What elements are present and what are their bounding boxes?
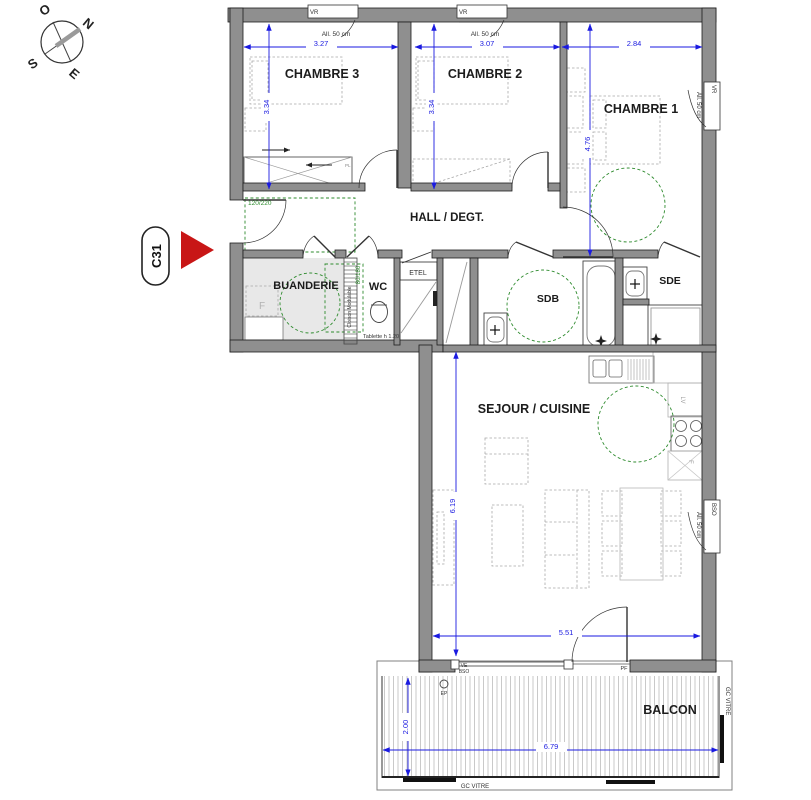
glass-railing-segment (720, 715, 724, 763)
sill-height-label: All. 50 cm (322, 31, 351, 38)
closet-label: PL (345, 163, 351, 168)
washer-label: F (259, 301, 265, 312)
french-door-label: PF (620, 666, 628, 672)
floor-plan-page: 3.27 3.07 2.84 3.34 3.34 4.76 6.19 5.51 … (0, 0, 811, 800)
railing-label: GC VITRE (461, 784, 489, 790)
shelf-label: Tablette h 1.20 (363, 334, 399, 340)
annotation-labels: VR VR All. 50 cm All. 50 cm VR All. 50 c… (248, 10, 730, 790)
window-type-label: VR (710, 85, 716, 94)
dining-chair (661, 491, 681, 516)
wall-sejour-bottom (419, 660, 455, 672)
window-type-label: BSO (710, 503, 716, 516)
room-label-buanderie: BUANDERIE (273, 280, 338, 292)
wardrobe (565, 96, 583, 128)
wall-etel-right (437, 258, 443, 345)
floor-fills (243, 258, 344, 340)
door-sdb (508, 242, 553, 257)
dining-chair (602, 521, 622, 546)
compass-east: E (66, 65, 83, 82)
compass-west: O (37, 1, 53, 19)
coffee-table (492, 505, 523, 566)
dim-balcon-depth: 2.00 (401, 720, 410, 735)
door-chambre1 (563, 207, 613, 257)
glass-railing-segment (403, 778, 456, 782)
wall-chambre2-hall (411, 183, 512, 191)
dim-balcon-width: 6.79 (544, 742, 559, 751)
floor-plan-drawing: 3.27 3.07 2.84 3.34 3.34 4.76 6.19 5.51 … (0, 0, 811, 800)
reservation-label: 120/220 (248, 200, 272, 207)
glass-railing-segment (606, 780, 655, 784)
door-sde (658, 242, 700, 257)
dim-chambre2-width: 3.07 (480, 39, 495, 48)
door-wc (347, 236, 378, 257)
partition-label: Cloison Modulable (347, 286, 353, 327)
wall-sdb-sde (615, 258, 623, 350)
dim-sejour-width: 5.51 (559, 628, 574, 637)
dim-sejour-depth: 6.19 (448, 499, 457, 514)
sill-height-label: All. 50 cm (471, 31, 500, 38)
room-label-wc: WC (369, 281, 387, 293)
wall-chambre3-hall (243, 183, 365, 191)
unit-tag: C31 (142, 227, 214, 285)
wall-sejour-left (419, 345, 432, 672)
glazing-label: BSO (459, 669, 470, 675)
room-label-etel: ETEL (409, 270, 427, 277)
wall-hall-wc (335, 250, 346, 258)
balcony (377, 661, 732, 790)
wall-exterior-left-upper (230, 8, 243, 200)
fridge-label: F (687, 460, 693, 464)
sink-basin (593, 360, 606, 377)
wall-wc-etel (394, 258, 400, 345)
drainer (628, 359, 649, 380)
dining-chair (602, 491, 622, 516)
dim-chambre3-depth: 3.34 (262, 100, 271, 115)
room-labels: CHAMBRE 3 CHAMBRE 2 CHAMBRE 1 HALL / DEG… (273, 67, 696, 717)
wall-sejour-top (443, 345, 716, 352)
wall-chambre3-chambre2 (398, 22, 411, 188)
wall-sde-stub (623, 299, 649, 305)
dining-chair (661, 551, 681, 576)
rainwater-pipe-label: EP (441, 691, 448, 697)
room-label-sde: SDE (659, 275, 681, 287)
room-label-chambre2: CHAMBRE 2 (448, 67, 522, 81)
wardrobe (565, 132, 583, 164)
dim-chambre1-depth: 4.76 (583, 137, 592, 152)
room-label-chambre1: CHAMBRE 1 (604, 102, 678, 116)
room-label-sejour: SEJOUR / CUISINE (478, 402, 591, 416)
dining-chair (661, 521, 681, 546)
door-chambre3 (359, 150, 397, 188)
compass-rose: O N S E (25, 1, 97, 83)
wall-sdb-left (470, 258, 478, 350)
room-label-chambre3: CHAMBRE 3 (285, 67, 359, 81)
armchair (485, 438, 528, 484)
sofa (545, 490, 589, 588)
wall-hall-etel (378, 250, 402, 258)
dining-table (620, 488, 663, 580)
dimension-labels: 3.27 3.07 2.84 3.34 3.34 4.76 6.19 5.51 … (262, 39, 641, 751)
room-label-sdb: SDB (537, 293, 560, 305)
sink-basin (609, 360, 622, 377)
window-type-label: VR (459, 10, 468, 16)
wall-buanderie-bottom (230, 340, 443, 352)
unit-label: C31 (149, 244, 164, 268)
wall-sejour-bottom (630, 660, 716, 672)
dim-chambre3-width: 3.27 (314, 39, 329, 48)
doors (243, 150, 700, 662)
sill-height-label: All. 50 cm (695, 92, 701, 118)
room-label-hall: HALL / DEGT. (410, 212, 484, 224)
room-label-balcon: BALCON (643, 703, 696, 717)
railing-label: GC VITRE (724, 687, 730, 715)
dining-chair (602, 551, 622, 576)
entry-arrow-icon (181, 231, 214, 269)
reservation-label: 80/180 (356, 265, 362, 284)
dim-chambre2-depth: 3.34 (427, 100, 436, 115)
turning-circle-cuisine (598, 386, 674, 462)
compass-north: N (80, 15, 97, 33)
wall-chambre2-chambre1 (560, 22, 567, 208)
sill-height-label: All. 50 cm (695, 512, 701, 538)
dim-chambre1-width: 2.84 (627, 39, 642, 48)
wall-exterior-left-lower (230, 243, 243, 352)
window-type-label: VR (310, 10, 319, 16)
door-buanderie (303, 236, 335, 257)
wall-hall-sdb (432, 250, 508, 258)
wall-chambre2-hall (548, 183, 560, 191)
door-chambre2 (512, 152, 548, 188)
turning-circle-chambre1 (591, 168, 665, 242)
turning-circle-sdb (507, 270, 579, 342)
compass-south: S (25, 55, 41, 72)
cooktop (671, 416, 702, 451)
dishwasher-label: LV (679, 397, 685, 404)
drain-icon (650, 333, 662, 345)
pillow (593, 132, 606, 160)
door-etel (402, 252, 431, 263)
wall-hall-buanderie (243, 250, 303, 258)
